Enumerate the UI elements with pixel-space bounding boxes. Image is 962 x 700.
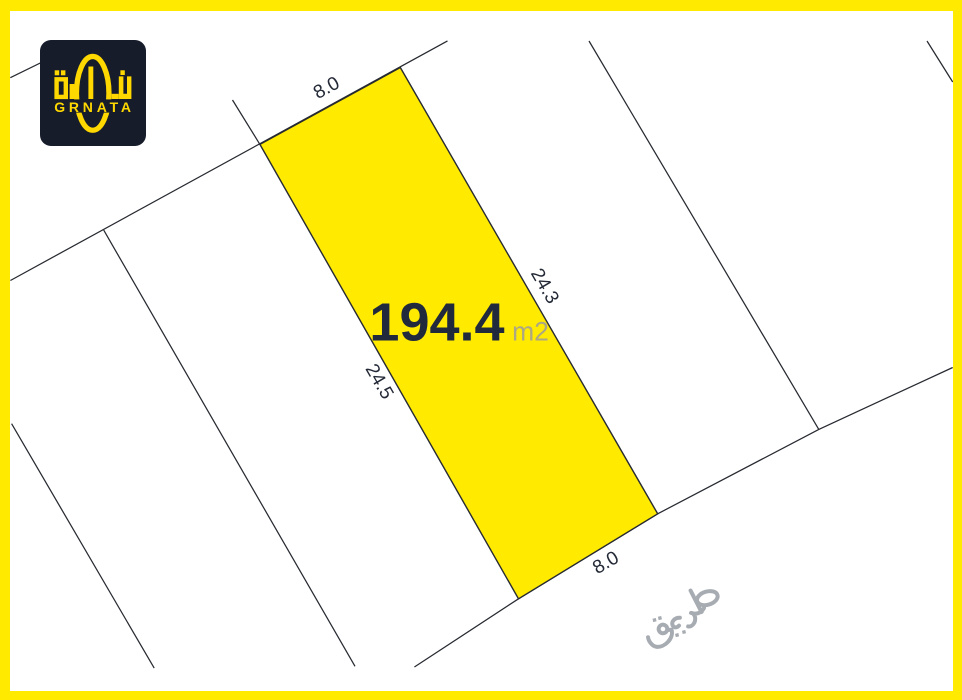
svg-text:GRNATA: GRNATA — [54, 99, 135, 115]
